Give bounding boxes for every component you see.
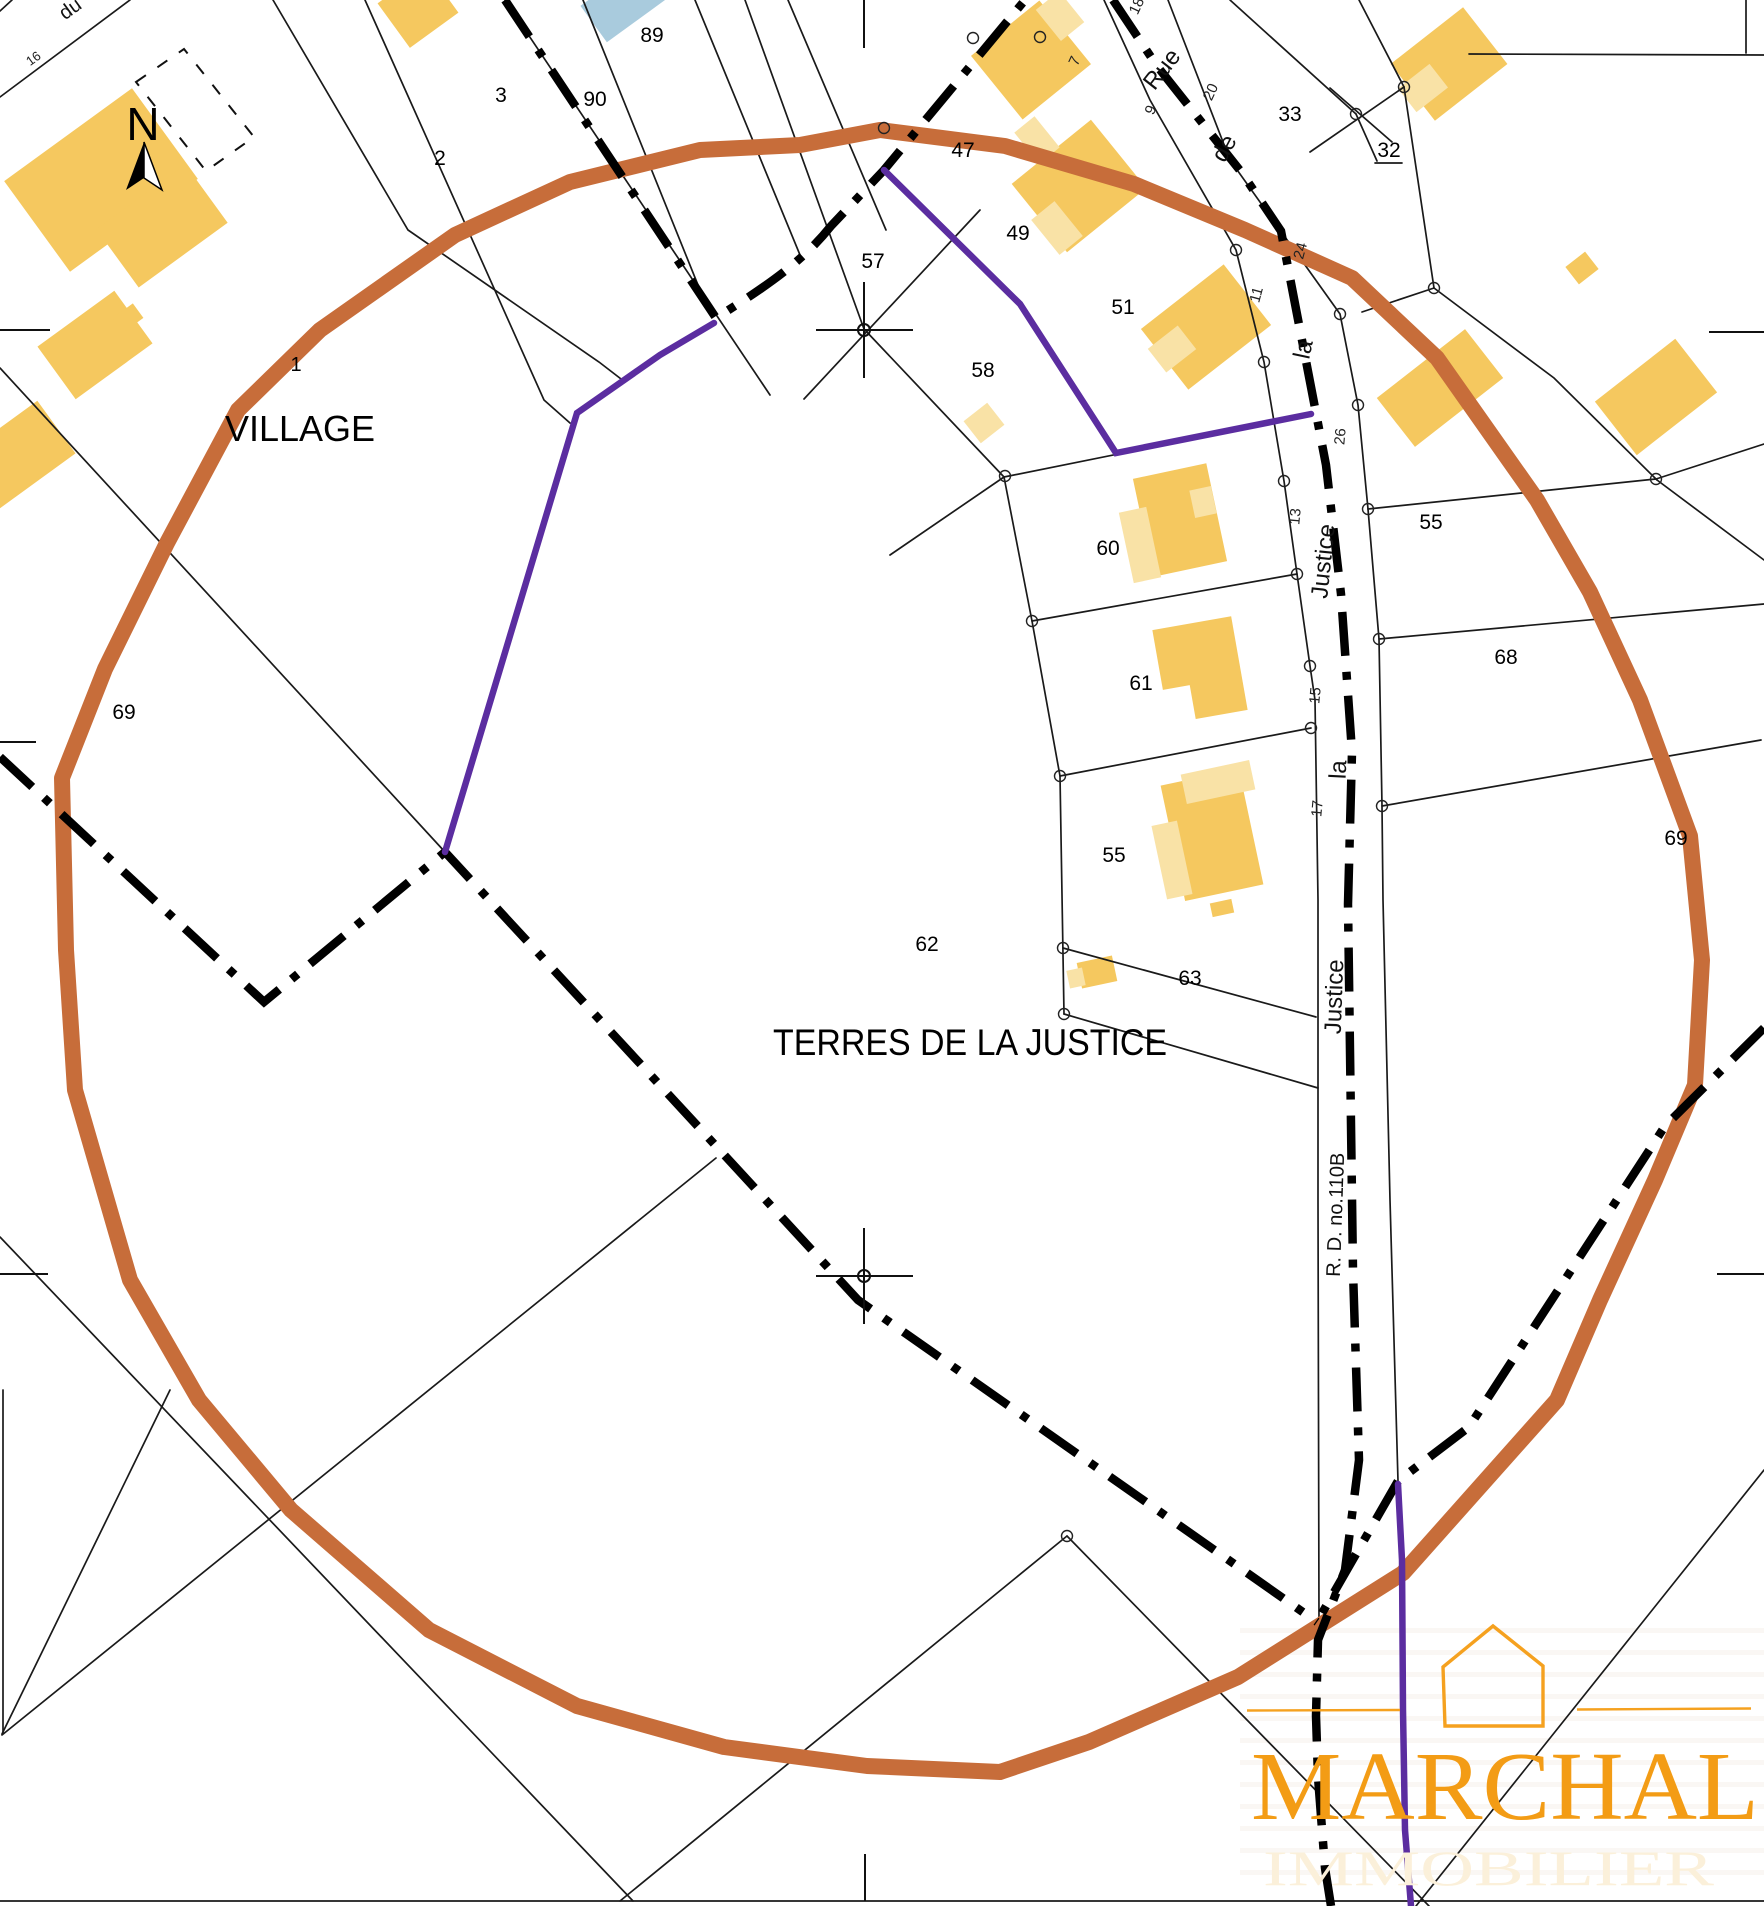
svg-text:TERRES DE LA JUSTICE: TERRES DE LA JUSTICE [773, 1022, 1167, 1063]
svg-text:N: N [126, 98, 159, 150]
svg-text:51: 51 [1111, 296, 1134, 319]
svg-text:1: 1 [290, 354, 301, 376]
svg-text:VILLAGE: VILLAGE [225, 408, 375, 449]
svg-text:2: 2 [434, 147, 446, 170]
svg-text:69: 69 [112, 701, 135, 724]
svg-text:MARCHAL: MARCHAL [1251, 1733, 1759, 1840]
svg-text:47: 47 [951, 139, 974, 162]
svg-text:32: 32 [1377, 139, 1400, 162]
svg-text:63: 63 [1178, 967, 1201, 990]
svg-text:26: 26 [1331, 428, 1349, 446]
svg-text:17: 17 [1308, 800, 1326, 818]
svg-text:57: 57 [861, 250, 884, 273]
svg-text:3: 3 [495, 84, 507, 107]
svg-text:55: 55 [1419, 511, 1442, 534]
svg-text:60: 60 [1096, 537, 1119, 560]
svg-text:68: 68 [1494, 646, 1517, 669]
svg-text:90: 90 [583, 88, 606, 111]
svg-text:49: 49 [1006, 222, 1029, 245]
svg-text:33: 33 [1278, 103, 1301, 126]
svg-text:Justice: Justice [1320, 959, 1350, 1035]
svg-text:R. D. no.110B: R. D. no.110B [1323, 1152, 1349, 1277]
svg-text:13: 13 [1286, 508, 1304, 526]
svg-text:61: 61 [1129, 672, 1152, 695]
svg-text:89: 89 [640, 24, 663, 47]
svg-text:69: 69 [1664, 827, 1687, 850]
svg-text:la: la [1325, 759, 1353, 780]
svg-text:15: 15 [1306, 687, 1324, 705]
svg-text:IMMOBILIER: IMMOBILIER [1263, 1840, 1715, 1896]
svg-text:62: 62 [915, 933, 938, 956]
svg-text:58: 58 [971, 359, 994, 382]
svg-text:55: 55 [1102, 844, 1125, 867]
